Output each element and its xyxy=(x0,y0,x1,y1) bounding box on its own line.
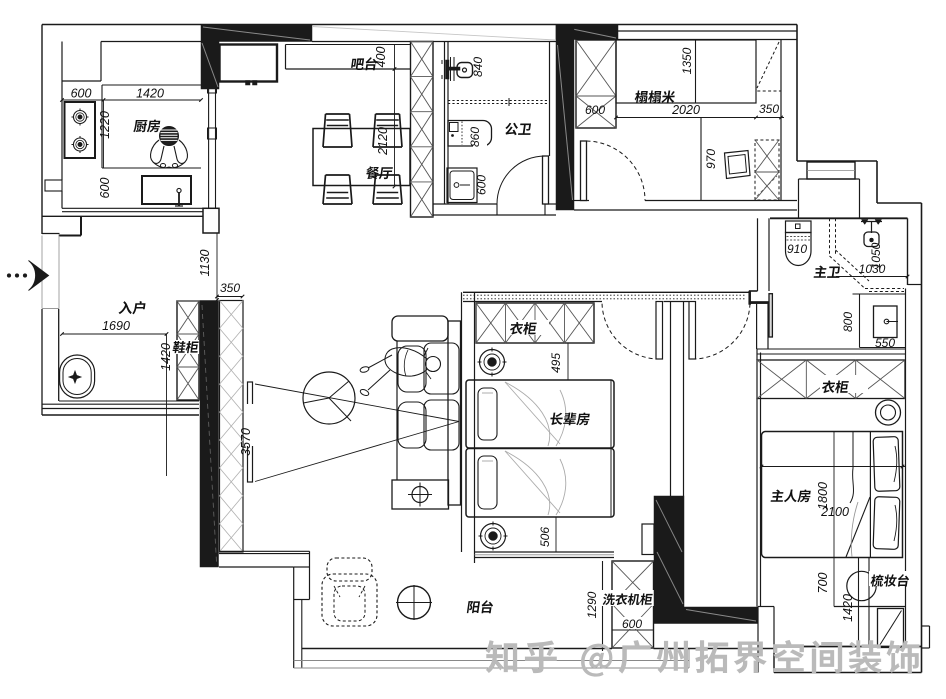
svg-text:600: 600 xyxy=(71,87,92,101)
svg-text:600: 600 xyxy=(98,178,112,199)
svg-text:600: 600 xyxy=(622,617,642,631)
svg-text:1290: 1290 xyxy=(585,591,599,618)
svg-text:550: 550 xyxy=(875,336,895,350)
svg-text:2100: 2100 xyxy=(820,505,849,519)
svg-text:495: 495 xyxy=(549,353,563,373)
svg-text:350: 350 xyxy=(220,281,240,295)
svg-text:970: 970 xyxy=(704,149,718,169)
svg-text:910: 910 xyxy=(787,242,807,256)
svg-text:1420: 1420 xyxy=(841,594,855,622)
svg-text:400: 400 xyxy=(374,47,388,68)
svg-text:600: 600 xyxy=(585,103,605,117)
svg-text:1350: 1350 xyxy=(680,47,694,74)
svg-text:860: 860 xyxy=(468,127,482,147)
svg-text:700: 700 xyxy=(816,573,830,594)
svg-text:2120: 2120 xyxy=(376,127,390,156)
svg-text:1220: 1220 xyxy=(98,111,112,139)
svg-text:3570: 3570 xyxy=(239,428,253,456)
svg-text:840: 840 xyxy=(471,57,485,77)
svg-text:1130: 1130 xyxy=(198,250,212,277)
svg-text:1420: 1420 xyxy=(159,343,173,371)
svg-text:1030: 1030 xyxy=(859,262,886,276)
svg-text:506: 506 xyxy=(538,527,552,547)
svg-text:600: 600 xyxy=(475,175,489,195)
svg-text:1690: 1690 xyxy=(102,319,130,333)
svg-text:800: 800 xyxy=(841,312,855,332)
svg-text:350: 350 xyxy=(759,102,779,116)
svg-text:1420: 1420 xyxy=(136,87,164,101)
svg-text:2020: 2020 xyxy=(671,103,700,117)
